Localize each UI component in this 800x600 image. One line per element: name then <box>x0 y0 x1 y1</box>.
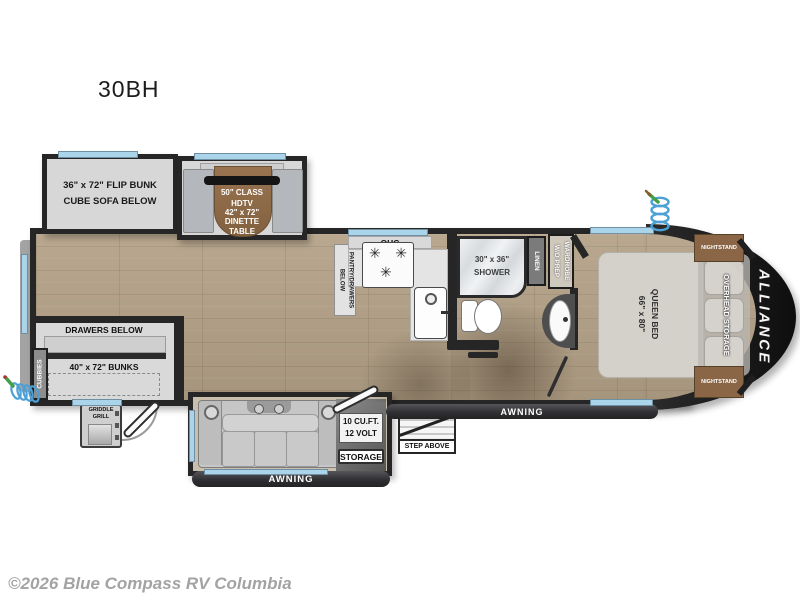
cupholder-icon <box>321 405 336 420</box>
window-strip <box>194 153 286 160</box>
window-strip <box>590 399 653 406</box>
vanity-sink-icon <box>549 300 571 342</box>
shower: 30" x 36" SHOWER <box>457 236 527 298</box>
window-strip <box>204 469 328 475</box>
burner-icon: ✳ <box>395 245 407 262</box>
sofa-console <box>247 401 291 413</box>
griddle-knob-icon <box>115 435 119 440</box>
nightstand-top-label: NIGHTSTAND <box>701 245 737 251</box>
griddle-knob-icon <box>115 423 119 428</box>
storage-label: STORAGE <box>340 452 382 462</box>
bunk-door-arc <box>122 405 157 440</box>
lower-bunk <box>48 373 160 396</box>
window-strip <box>72 399 122 406</box>
refrigerator: 10 CU.FT. 12 VOLT <box>339 413 383 443</box>
sofa-backrest <box>222 414 319 432</box>
shower-label: 30" x 36" SHOWER <box>474 254 510 280</box>
floorplan-model-title: 30BH <box>98 76 160 103</box>
cupholder-icon <box>204 405 219 420</box>
nightstand-bottom-label: NIGHTSTAND <box>701 379 737 385</box>
upper-bunk <box>44 336 166 353</box>
sofa-cushion <box>286 431 319 467</box>
bunk-edge <box>44 353 166 359</box>
flip-bunk-slide: 36" x 72" FLIP BUNK CUBE SOFA BELOW <box>42 154 178 234</box>
copyright-text: ©2026 Blue Compass RV Columbia <box>8 574 292 594</box>
window-strip <box>21 254 28 334</box>
queen-bed-label: QUEEN BED 66" x 80" <box>635 289 661 340</box>
bath-wall <box>447 234 457 344</box>
cupholder-icon <box>254 404 264 414</box>
pantry-label: PANTRY/DRAWERS BELOW <box>336 252 355 308</box>
sink-handle-icon <box>441 311 449 314</box>
griddle-knob-icon <box>115 411 119 416</box>
window-strip <box>58 151 138 158</box>
floorplan-page: 30BH ALLIANCE QUEEN BED 66" x 80" OVERHE… <box>0 0 800 600</box>
awning-left-label: AWNING <box>268 474 313 485</box>
window-strip <box>348 229 428 236</box>
drawers-below-label: DRAWERS BELOW <box>40 324 168 335</box>
bath-wall <box>447 340 499 350</box>
griddle-grill: GRIDDLE GRILL <box>80 404 122 448</box>
dinette-slide: OHC 50" CLASS HDTV 42" x 72" DINETTE TAB… <box>177 156 307 240</box>
nightstand-top: NIGHTSTAND <box>694 234 744 262</box>
bunks-label: 40" x 72" BUNKS <box>40 361 168 372</box>
burner-icon: ✳ <box>380 264 392 281</box>
awning-right-label: AWNING <box>501 407 544 417</box>
refrigerator-label: 10 CU.FT. 12 VOLT <box>343 416 379 440</box>
faucet-icon <box>563 317 568 322</box>
window-strip <box>189 410 195 462</box>
alliance-brand-text: ALLIANCE <box>756 269 773 365</box>
awning-right: AWNING <box>386 404 658 419</box>
overhead-storage-label: OVERHEAD STORAGE <box>720 274 732 356</box>
tv-label: 50" CLASS HDTV <box>221 187 263 209</box>
nightstand-bottom: NIGHTSTAND <box>694 366 744 398</box>
dinette-table-label: 42" x 72" DINETTE TABLE <box>225 208 259 237</box>
griddle-panel <box>88 424 112 445</box>
cubbies-label: CUBBIES <box>37 359 44 388</box>
stove-icon: ✳ ✳ ✳ <box>362 242 414 288</box>
bath-step <box>468 352 498 358</box>
toilet-icon <box>474 299 502 334</box>
wardrobe-label: WARDROBE W/D PREP <box>551 242 571 281</box>
flip-bunk-label: 36" x 72" FLIP BUNK CUBE SOFA BELOW <box>63 178 157 210</box>
tv-bar <box>204 176 280 185</box>
burner-icon: ✳ <box>369 245 381 262</box>
sofa <box>198 400 342 468</box>
cupholder-icon <box>274 404 284 414</box>
sofa-cushion <box>254 431 287 467</box>
linen-label: LINEN <box>531 251 541 271</box>
sofa-slide: 10 CU.FT. 12 VOLT STORAGE <box>188 392 392 476</box>
sofa-cushion <box>222 431 255 467</box>
window-strip <box>590 227 654 234</box>
storage-compartment: STORAGE <box>338 449 384 464</box>
faucet-icon <box>425 293 437 305</box>
bunk-door-leaf <box>128 406 155 433</box>
step-above-label: STEP ABOVE <box>400 439 454 452</box>
